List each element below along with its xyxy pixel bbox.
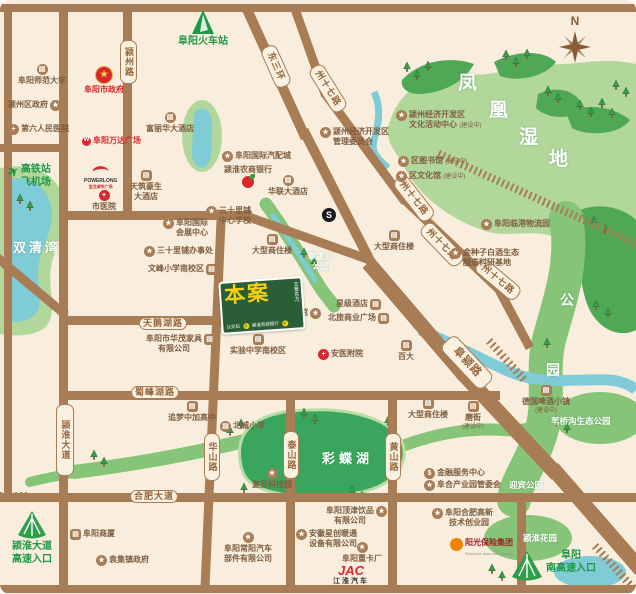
star-icon: ★ <box>96 555 107 566</box>
area-label-fuyinghe-park: 阜颍河公园 <box>308 252 332 271</box>
road-taishan <box>286 391 295 592</box>
road-yinghuai-avenue <box>59 4 68 592</box>
poi-wenfeng-school: 文峰小学南校区 ▤ <box>148 264 217 275</box>
building-icon: ▤ <box>267 234 278 245</box>
poi-port-logistics: ★ 阜阳临港物流园 <box>481 219 550 230</box>
jac-logo-icon: JAC <box>338 564 364 577</box>
poi-devzone-mgmt: ★ 颍州经济开发区管理委员会 <box>320 127 389 147</box>
road-h148 <box>0 144 66 152</box>
area-label-fenghuang-3: 湿 <box>519 122 538 149</box>
poi-exhibition-center: ★ 阜阳国际会展中心 <box>163 218 208 238</box>
school-icon: ▤ <box>206 264 217 275</box>
poi-commercial-building-1: ▤ 大型商住楼 <box>252 234 292 256</box>
poi-auto-parts-city: ★ 阜阳国际汽配城 <box>222 151 291 162</box>
hotel-icon: ▤ <box>165 112 176 123</box>
area-label-gong: 公 <box>560 290 574 310</box>
star-icon: ★ <box>163 218 174 229</box>
railway-west <box>0 492 30 500</box>
poi-tianzhu-hotel: ▤ 天筑豪生大酒店 <box>130 170 162 202</box>
building-icon: ▤ <box>423 398 434 409</box>
poi-heavy-truck-plant: ★ 阜阳重卡厂 <box>342 542 382 564</box>
factory-icon: ▤ <box>204 334 215 345</box>
highway-entrance-icon <box>510 550 544 582</box>
hotel-icon: ▤ <box>370 299 381 310</box>
poi-sanshilipu-office: ★ 三十里铺办事处 <box>144 246 213 257</box>
poi-jinzhongzi-base: ★ 金种子白酒生态酿造科研基地 <box>450 248 519 268</box>
star-icon: ★ <box>481 219 492 230</box>
hospital-cross-icon: + <box>318 349 329 360</box>
star-icon: ★ <box>398 156 409 167</box>
sunshine-logo-icon <box>450 538 463 551</box>
hotel-icon: ▤ <box>283 175 294 186</box>
location-map: 颍州路 东三环 州十七路 州十七路 州十七路 州十七路 阜颍路 天鹅湖路 蜀峰湖… <box>0 0 636 594</box>
area-label-yuan: 园 <box>546 360 560 380</box>
project-marker: 本案 文景东方 公交站B 颍淮农商银行¥ <box>218 276 305 335</box>
star-icon: ★ <box>296 529 307 540</box>
poi-powerlong: POWERLONG 宝龙城市广场 <box>84 166 117 189</box>
building-icon: ▤ <box>389 230 400 241</box>
road-label-yinghuai: 颍淮大道 <box>56 404 74 476</box>
poi-sw-highway-entrance: 颍淮大道高速入口 <box>12 510 52 566</box>
poi-fuyang-gov: ★ 阜阳市政府 <box>84 66 124 95</box>
gov-emblem-icon: ★ <box>95 66 113 84</box>
road-label-huashan: 华山路 <box>204 433 220 481</box>
area-label-fenghuang-4: 地 <box>549 144 568 171</box>
area-label-fenghuang-1: 凤 <box>458 68 477 95</box>
poi-zhuimeng-school: ▤ 追梦中加高中 <box>168 401 216 423</box>
road-frame-bottom <box>0 585 636 593</box>
gov-star-icon: ★ <box>50 100 61 111</box>
poi-hsr-airport: ✈ 高铁站飞机场 <box>8 164 51 189</box>
poi-sixth-hospital: + 第六人民医院 <box>8 124 69 135</box>
star-icon: ★ <box>222 151 233 162</box>
poi-yuanji-gov: ★ 袁集镇政府 <box>96 555 149 566</box>
building-icon: ▤ <box>70 529 81 540</box>
poi-fudan-tech-park: ★ 复旦科技园 <box>252 468 292 490</box>
poi-wanda-plaza: W 阜阳万达广场 <box>82 136 141 146</box>
compass: N <box>558 14 592 64</box>
star-icon: ★ <box>243 532 254 543</box>
powerlong-logo-icon <box>92 165 110 179</box>
poi-commercial-building-3: ▤ 大型商住楼 <box>408 398 448 420</box>
star-icon: ★ <box>310 308 321 319</box>
poi-city-hospital: + 市医院 <box>92 190 116 212</box>
money-icon: $ <box>424 468 435 479</box>
bank-stop-icon: ¥ <box>282 320 288 326</box>
poi-fulihua-hotel: ▤ 富丽华大酒店 <box>146 112 194 134</box>
plane-icon: ✈ <box>5 162 23 182</box>
poi-financial-center: $ 金融服务中心 <box>424 468 485 479</box>
star-icon: ★ <box>396 110 407 121</box>
poi-district-library: ★ 区图书馆 (建设中) <box>398 156 467 167</box>
star-icon: ★ <box>450 248 461 259</box>
poi-fuhe-industry-mgmt: ★ 阜合产业园管委会 <box>424 480 501 491</box>
star-icon: ★ <box>432 508 443 519</box>
wanda-logo-icon: W <box>82 137 91 146</box>
road-label-shufenghu: 蜀峰湖路 <box>131 386 179 399</box>
building-icon: ▤ <box>468 401 479 412</box>
star-icon: ★ <box>357 542 368 553</box>
area-label-shuangqingwan: 双清湾 <box>13 237 61 256</box>
project-subtitle: 文景东方 <box>292 281 298 301</box>
star-icon: ★ <box>144 246 155 257</box>
poi-sunshine-insurance: 阳光保险集团Sunshine Insurance Group <box>450 538 513 558</box>
building-icon: ▤ <box>378 313 389 324</box>
poi-jac-logo: JAC 江淮汽车 <box>333 564 369 585</box>
school-icon: ▤ <box>187 401 198 412</box>
poi-anyi-hospital: + 安医附院 <box>318 349 363 360</box>
poi-beilv-plaza: 北旅商业广场 ▤ <box>328 313 389 324</box>
star-icon: ★ <box>396 171 407 182</box>
area-label-fenghuang-2: 凰 <box>489 95 508 122</box>
project-name: 本案 <box>224 282 271 306</box>
poi-star-hotel: 星级酒店 ▤ <box>336 299 381 310</box>
school-icon: ▤ <box>220 421 231 432</box>
poi-culture-center: ★ 颍州经济开发区文化活动中心 (建设中) <box>396 110 481 131</box>
star-icon: ★ <box>267 468 278 479</box>
star-icon: ★ <box>424 480 435 491</box>
poi-train-station: 阜阳火车站 <box>178 10 228 49</box>
building-icon: ▤ <box>541 385 552 396</box>
poi-commercial-building-2: ▤ 大型商住楼 <box>374 230 414 252</box>
poi-s-company-logo: S <box>322 208 336 222</box>
poi-beicheng-school: ▤ 北城小学 <box>220 421 265 432</box>
area-label-weiqiaogou: 苇桥沟生态公园 <box>551 415 611 427</box>
road-frame-top <box>0 4 636 12</box>
school-icon: ▤ <box>253 334 264 345</box>
compass-rose-icon <box>558 30 592 64</box>
area-label-caidiehu: 彩蝶湖 <box>322 448 373 467</box>
poi-baida: ▤ 百大 <box>398 340 414 362</box>
hotel-icon: ▤ <box>141 170 152 181</box>
compass-n-label: N <box>571 14 580 29</box>
road-label-hefei: 合肥大道 <box>130 490 178 503</box>
bus-stop-icon: B <box>243 323 249 329</box>
road-huangshan <box>388 391 397 592</box>
poi-sanshilipu-school: ★ 三十里铺中心学校 <box>206 206 251 226</box>
building-icon: ▤ <box>401 340 412 351</box>
poi-rural-bank: 颍淮农商银行 <box>224 165 272 188</box>
poi-yingzhou-gov: 颍州区政府 ★ <box>8 100 61 111</box>
poi-shiyan-school: ▤ 实验中学南校区 <box>230 334 286 356</box>
poi-mojie: ▤ 磨街 (建设中) <box>462 401 484 432</box>
s-logo-icon: S <box>322 208 336 222</box>
poi-dingjin-beverage: 阜阳顶津饮品有限公司 ★ <box>326 506 387 526</box>
city-hospital-cross-icon: + <box>99 190 110 201</box>
university-icon: ▤ <box>37 64 48 75</box>
star-icon: ★ <box>376 506 387 517</box>
poi-south-highway-entrance: 阜阳南高速入口 <box>510 550 596 582</box>
road-label-huangshan: 黄山路 <box>385 433 401 481</box>
road-frame-left <box>4 4 12 500</box>
bank-logo-icon <box>242 176 254 188</box>
highway-entrance-icon <box>16 510 48 540</box>
poi-changyang-auto: ★ 阜阳常阳汽车部件有限公司 <box>224 532 272 564</box>
road-label-tianehu: 天鹅湖路 <box>139 317 187 330</box>
area-label-yingbin: 迎宾公园 <box>509 479 543 491</box>
poi-district-culture-hall: ★ 区文化馆 (建设中) <box>396 171 465 182</box>
star-icon: ★ <box>320 127 331 138</box>
poi-normal-university: ▤ 阜阳师范大学 <box>18 64 66 86</box>
poi-huamao-furniture: 阜阳市华茂家具有限公司 ▤ <box>146 334 215 354</box>
area-label-yinghuai-garden: 颍淮花园 <box>523 532 557 544</box>
train-station-icon <box>192 10 214 35</box>
hospital-cross-icon: + <box>8 124 19 135</box>
poi-hualian-hotel: ▤ 华联大酒店 <box>268 175 308 197</box>
poi-fuyang-shangsha: ▤ 阜阳商厦 <box>70 529 115 540</box>
poi-german-beer-town: ▤ 德国啤酒小镇 (建设中) <box>522 385 570 416</box>
star-icon: ★ <box>206 206 217 217</box>
road-hefei-avenue <box>0 493 636 502</box>
poi-hightech-startup-park: ★ 阜阳合肥高新技术创业园 <box>432 508 493 528</box>
